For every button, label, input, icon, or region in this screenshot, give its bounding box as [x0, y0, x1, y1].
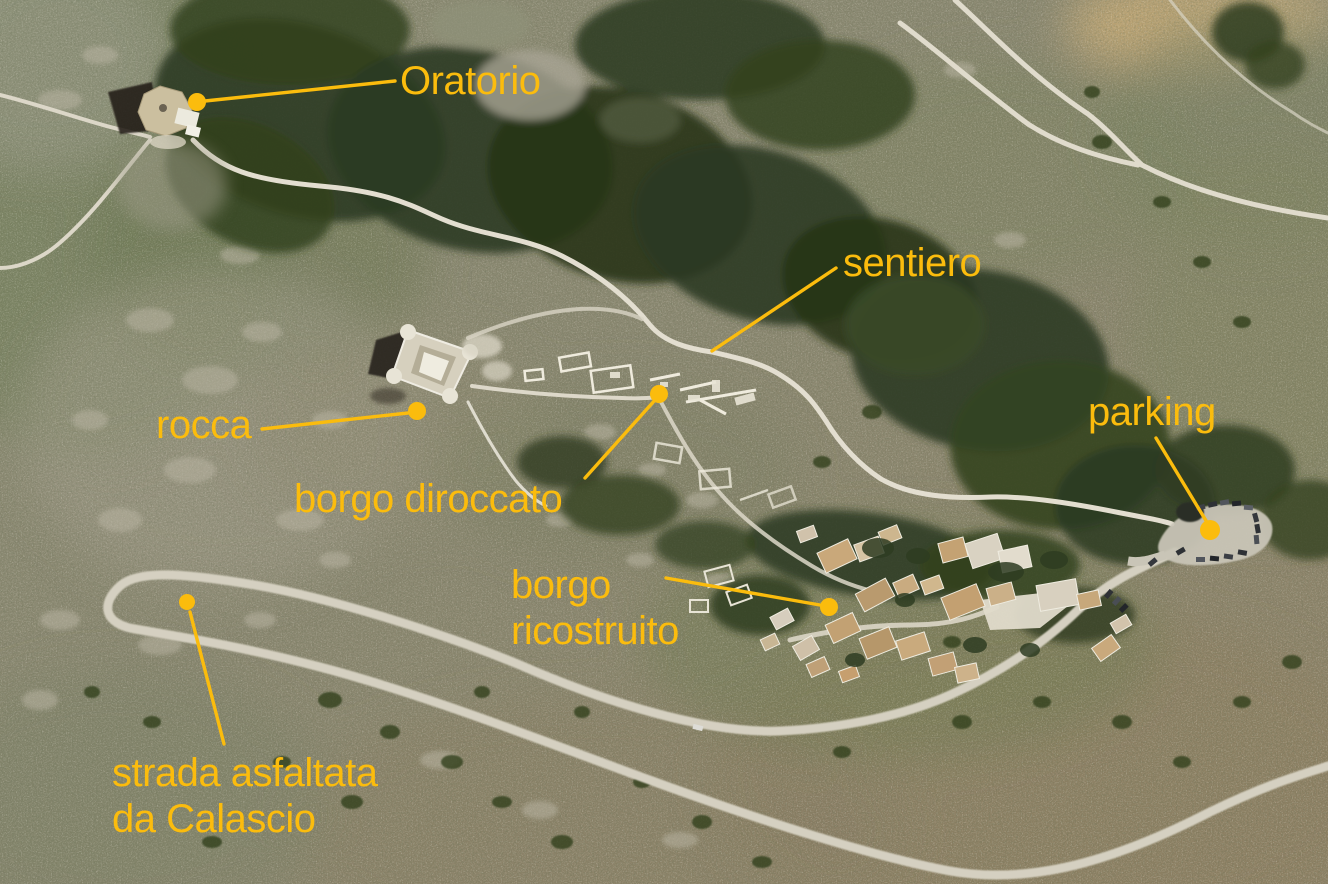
label-oratorio: Oratorio	[400, 58, 541, 104]
label-borgo-ricostruito: borgo ricostruito	[511, 562, 679, 654]
label-borgo-diroccato: borgo diroccato	[294, 476, 562, 522]
label-rocca: rocca	[156, 402, 251, 448]
label-parking: parking	[1088, 389, 1216, 435]
label-sentiero: sentiero	[843, 240, 981, 286]
label-strada-asfaltata: strada asfaltata da Calascio	[112, 750, 378, 842]
annotated-aerial-map: Oratorio sentiero rocca borgo diroccato …	[0, 0, 1328, 884]
